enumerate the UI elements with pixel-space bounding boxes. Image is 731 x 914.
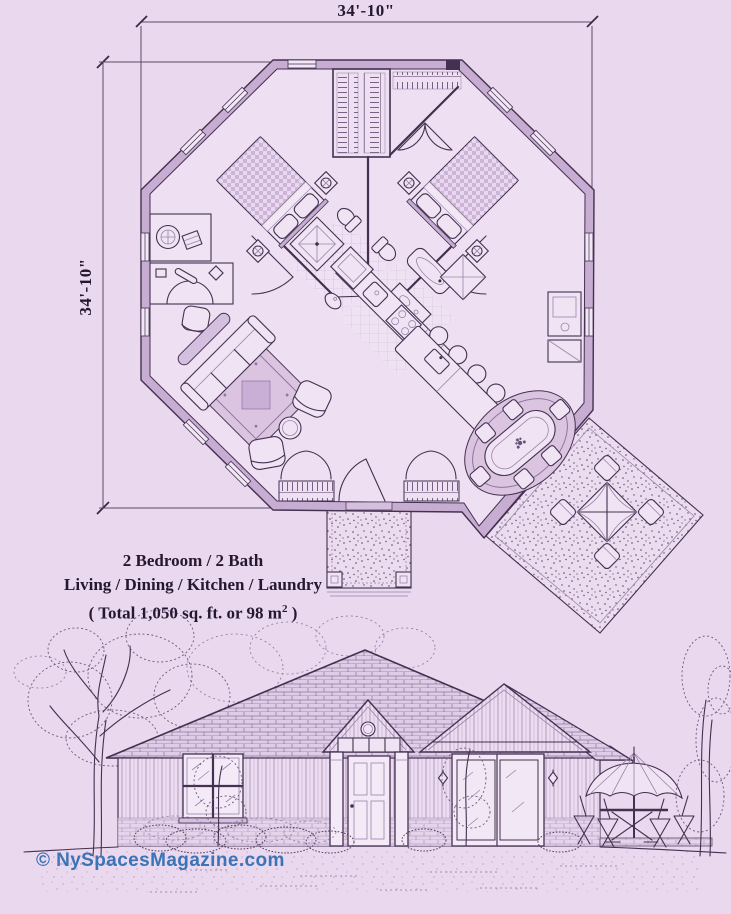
summary-line-areas: Living / Dining / Kitchen / Laundry bbox=[64, 573, 322, 597]
armchair-icon bbox=[248, 435, 287, 470]
dimension-label-top: 34'-10" bbox=[337, 1, 394, 21]
window-sill bbox=[179, 818, 247, 823]
entry-porch bbox=[327, 506, 411, 596]
summary-line-total: ( Total 1,050 sq. ft. or 98 m2 ) bbox=[64, 597, 322, 626]
watermark: © NySpacesMagazine.com bbox=[36, 850, 285, 872]
summary-total-close: ) bbox=[287, 604, 297, 623]
door-knob bbox=[350, 804, 354, 808]
porch-post bbox=[327, 572, 342, 587]
plan-summary: 2 Bedroom / 2 Bath Living / Dining / Kit… bbox=[64, 549, 322, 626]
sliding-glass-door bbox=[439, 754, 558, 846]
architectural-drawing bbox=[0, 0, 731, 914]
entry-threshold bbox=[346, 502, 392, 510]
porch-post bbox=[396, 572, 411, 587]
walkin-closet-hangers bbox=[393, 72, 461, 89]
closet-hangers bbox=[337, 73, 358, 153]
floor-plan bbox=[97, 16, 703, 633]
right-tree bbox=[676, 636, 731, 856]
summary-total-text: ( Total 1,050 sq. ft. or 98 m bbox=[89, 604, 282, 623]
portico-column bbox=[330, 752, 343, 846]
utility-cabinet bbox=[548, 292, 581, 362]
blueprint-page: 34'-10" 34'-10" 2 Bedroom / 2 Bath Livin… bbox=[0, 0, 731, 914]
dimension-label-left: 34'-10" bbox=[76, 258, 96, 315]
left-window bbox=[179, 754, 247, 823]
folding-chair-icon bbox=[674, 796, 694, 844]
house-elevation bbox=[106, 650, 634, 846]
wall-vent-mark bbox=[446, 60, 460, 70]
portico-column bbox=[395, 752, 408, 846]
closet-hangers bbox=[364, 73, 385, 153]
summary-line-rooms: 2 Bedroom / 2 Bath bbox=[64, 549, 322, 573]
laundry-closet bbox=[150, 214, 211, 261]
